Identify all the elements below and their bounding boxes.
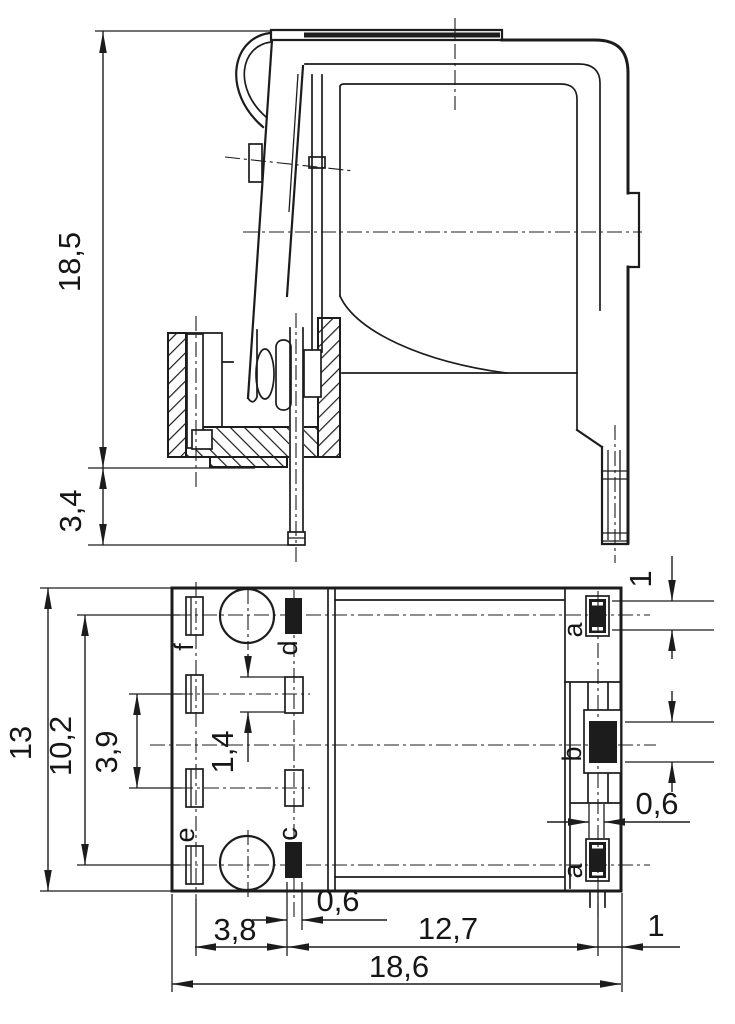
ext-1b: [598, 890, 622, 992]
arrow-left-icon: [288, 943, 309, 951]
slot-f: [186, 597, 203, 635]
arrow-up-icon: [81, 615, 89, 636]
pin-label-b: b: [557, 746, 587, 761]
pivot-centerline: [225, 157, 354, 171]
arrow-up-icon: [668, 630, 676, 651]
ext-b: [625, 722, 714, 762]
dim-label-3-8: 3,8: [213, 912, 256, 947]
technical-drawing-page: 18,5 3,4: [0, 0, 735, 1024]
hole-bottom: [220, 836, 274, 890]
actuator-tab: [249, 144, 262, 182]
hatch-left-wall: [168, 333, 186, 457]
top-plate-section-fill: [304, 33, 500, 38]
pin-label-e: e: [170, 827, 200, 842]
dim-label-10-2: 10,2: [43, 716, 78, 776]
coil-cavity: [340, 84, 577, 373]
left-slot-foot: [192, 430, 212, 449]
arrow-up-icon: [133, 694, 141, 715]
relay-dimension-drawing: 18,5 3,4: [0, 0, 735, 1024]
dim-label-1-4: 1,4: [205, 730, 240, 773]
arrow-left-icon: [622, 943, 643, 951]
spring-notch: [304, 350, 321, 397]
dim-label-1-right: 1: [623, 570, 658, 587]
dim-label-18-6: 18,6: [369, 949, 429, 984]
arrow-up-icon: [99, 32, 107, 53]
contact-curl: [256, 349, 274, 399]
leg-diagonal: [577, 430, 602, 447]
pin-b: [589, 721, 617, 763]
armature-right-edge: [287, 66, 303, 296]
dim-label-13: 13: [3, 726, 38, 760]
arrow-down-icon: [99, 524, 107, 545]
pin-label-f: f: [169, 643, 199, 651]
arrow-down-icon: [99, 447, 107, 468]
base-section: [168, 313, 615, 566]
arrow-up-icon: [44, 588, 52, 609]
case-top-edge: [502, 40, 628, 73]
dim-label-12-7: 12,7: [418, 911, 478, 946]
pin-label-c: c: [273, 827, 303, 841]
hook-outer: [236, 33, 270, 127]
dim-label-side-height: 18,5: [52, 232, 87, 292]
arrow-right-icon: [577, 943, 598, 951]
arrow-down-icon: [668, 701, 676, 722]
hole-top: [220, 589, 274, 643]
dim-label-0-6-bottom: 0,6: [316, 883, 359, 918]
arrow-right-icon: [600, 980, 621, 988]
cavity-bottom-curve: [340, 296, 506, 373]
dim-label-1-bottom: 1: [647, 908, 664, 943]
arrow-down-icon: [44, 870, 52, 891]
pin-label-a-top: a: [558, 622, 588, 638]
arrow-up-icon: [668, 762, 676, 783]
spring-plate: [312, 75, 322, 352]
arrow-down-icon: [81, 844, 89, 865]
contact-support: [276, 340, 291, 410]
dim-label-3-9: 3,9: [89, 730, 124, 773]
arrow-down-icon: [668, 580, 676, 601]
arrow-down-icon: [133, 767, 141, 788]
dim-label-pin-length: 3,4: [53, 489, 88, 532]
pin-label-d: d: [273, 640, 303, 655]
armature-left-edge: [248, 40, 272, 398]
dim-label-0-6-right: 0,6: [635, 786, 678, 821]
hatch-bottom-step: [210, 457, 287, 467]
arrow-left-icon: [172, 980, 193, 988]
side-tab: [628, 193, 639, 267]
arrow-up-icon: [99, 468, 107, 489]
arrow-right-icon: [266, 916, 287, 924]
pin-label-a-bottom: a: [558, 863, 588, 879]
case-inner-top: [305, 64, 600, 310]
arrow-right-icon: [267, 943, 288, 951]
